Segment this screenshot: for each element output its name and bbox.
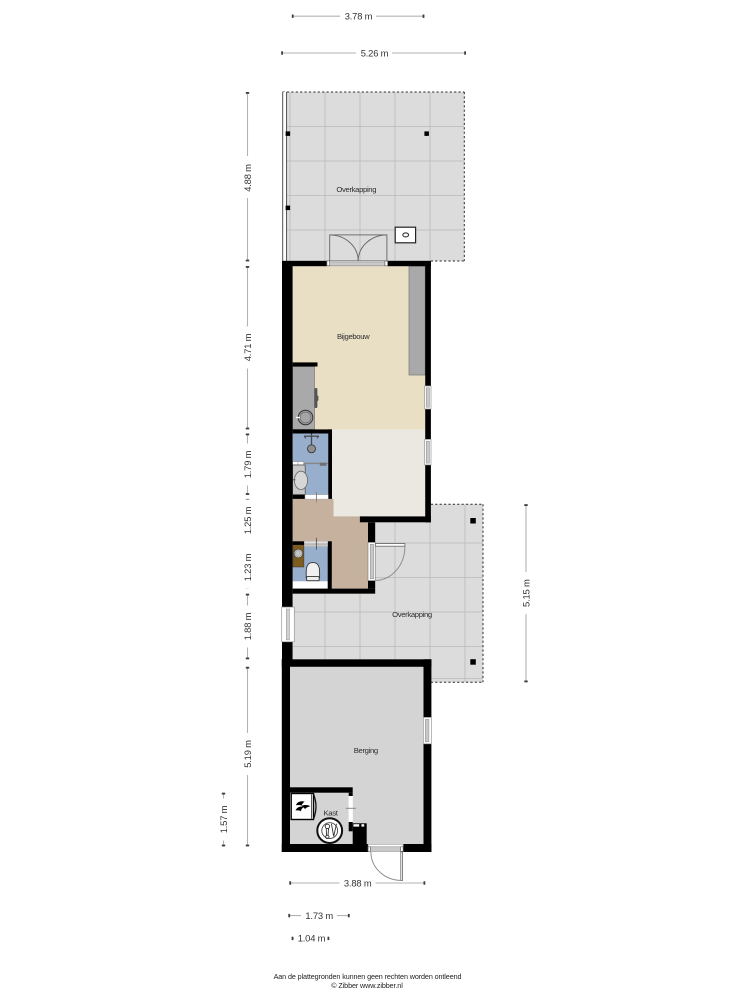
svg-text:5.15 m: 5.15 m <box>520 579 531 607</box>
svg-text:1.04 m: 1.04 m <box>298 933 326 944</box>
svg-text:Kast: Kast <box>324 808 339 817</box>
svg-text:Aan de plattegronden kunnen ge: Aan de plattegronden kunnen geen rechten… <box>274 972 462 981</box>
svg-text:4.71 m: 4.71 m <box>242 333 253 361</box>
svg-text:5.26 m: 5.26 m <box>361 47 389 58</box>
svg-text:1.25 m: 1.25 m <box>242 506 253 534</box>
svg-text:5.19 m: 5.19 m <box>242 740 253 768</box>
svg-text:1.79 m: 1.79 m <box>242 450 253 478</box>
svg-text:© Zibber www.zibber.nl: © Zibber www.zibber.nl <box>331 981 403 990</box>
svg-text:1.88 m: 1.88 m <box>242 612 253 640</box>
svg-text:3.88 m: 3.88 m <box>344 877 372 888</box>
svg-text:1.73 m: 1.73 m <box>305 910 333 921</box>
svg-text:1.23 m: 1.23 m <box>242 553 253 581</box>
svg-text:1.57 m: 1.57 m <box>218 805 229 833</box>
svg-text:Overkapping: Overkapping <box>392 610 432 619</box>
svg-text:Bijgebouw: Bijgebouw <box>337 332 370 341</box>
svg-text:Berging: Berging <box>354 746 378 755</box>
svg-text:Overkapping: Overkapping <box>336 185 376 194</box>
svg-text:4.88 m: 4.88 m <box>242 164 253 192</box>
svg-text:3.78 m: 3.78 m <box>345 11 373 22</box>
